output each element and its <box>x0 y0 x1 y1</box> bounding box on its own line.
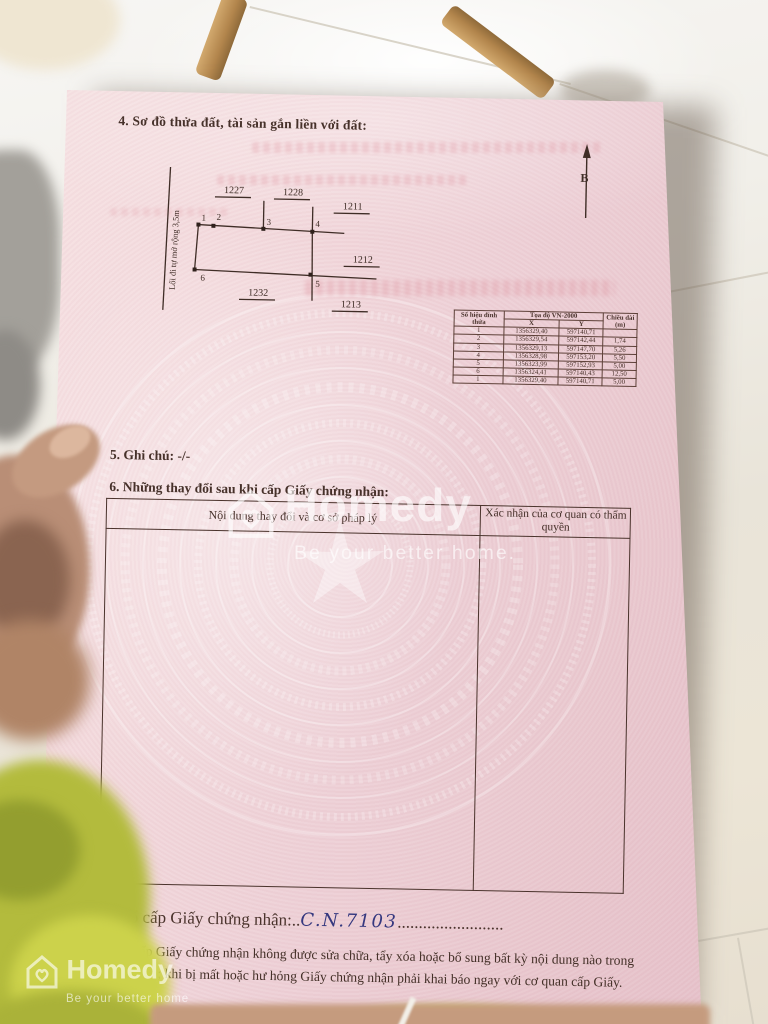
parcel-label: 1228 <box>283 187 303 198</box>
coord-col-length: Chiều dài (m) <box>603 313 637 330</box>
coord-cell: 597152,93 <box>559 361 603 370</box>
vertex-label: 3 <box>266 217 271 227</box>
dotted-line: ......................... <box>397 912 504 933</box>
coord-cell: 597140,71 <box>558 377 602 386</box>
homedy-logo-icon <box>222 485 280 548</box>
vertex-label: 1 <box>201 213 206 223</box>
homedy-brand-text: Homedy <box>66 955 173 985</box>
tile-grout-line <box>737 938 755 1024</box>
coord-cell: 1 <box>453 375 503 384</box>
homedy-brand-text: Homedy <box>284 479 471 531</box>
coord-cell: 597140,71 <box>559 328 603 337</box>
coord-cell: 597142,44 <box>559 336 603 345</box>
homedy-tagline: Be your better home. <box>294 542 516 565</box>
homedy-logo-icon <box>22 952 62 997</box>
parcel-label: 1227 <box>224 185 244 196</box>
parcel-label: 1213 <box>341 299 361 310</box>
tile-grout-line <box>698 927 768 942</box>
coord-cell: 597153,20 <box>559 353 603 362</box>
floor-below-paper <box>150 1004 710 1024</box>
homedy-tagline: Be your better home <box>66 993 189 1005</box>
road-label: Lối đi tự mở rộng 3,5m <box>167 209 181 290</box>
north-label: B <box>580 171 588 185</box>
coordinate-rows: 11356329,40597140,7121356329,54597142,44… <box>453 326 637 386</box>
parcel-label: 1232 <box>248 288 268 299</box>
coord-col-vertex: Số hiệu đỉnh thửa <box>454 310 504 327</box>
homedy-watermark-corner: Homedy Be your better home <box>22 952 189 1005</box>
vertex-label: 6 <box>200 273 205 283</box>
coord-cell: 5,00 <box>602 378 636 387</box>
photo-of-land-certificate: 4. Sơ đồ thửa đất, tài sản gắn liền với … <box>0 0 768 1024</box>
coord-cell: 597140,43 <box>558 369 602 378</box>
coordinate-table: Số hiệu đỉnh thửa Tọa độ VN-2000 Chiều d… <box>452 309 637 387</box>
vertex-label: 2 <box>216 212 221 222</box>
vertex-label: 4 <box>315 219 320 229</box>
coord-cell: 597147,70 <box>559 344 603 353</box>
vertex-label: 5 <box>315 279 320 289</box>
handwritten-issue-number: C.N.7103 <box>300 910 397 933</box>
parcel-label: 1212 <box>353 255 373 266</box>
homedy-watermark-center: Homedy Be your better home. <box>222 478 516 565</box>
north-arrow: B <box>580 144 591 218</box>
parcel-label: 1211 <box>343 201 363 212</box>
coord-cell: 1356329,40 <box>503 376 559 385</box>
section5-note: 5. Ghi chú: -/- <box>110 447 191 465</box>
